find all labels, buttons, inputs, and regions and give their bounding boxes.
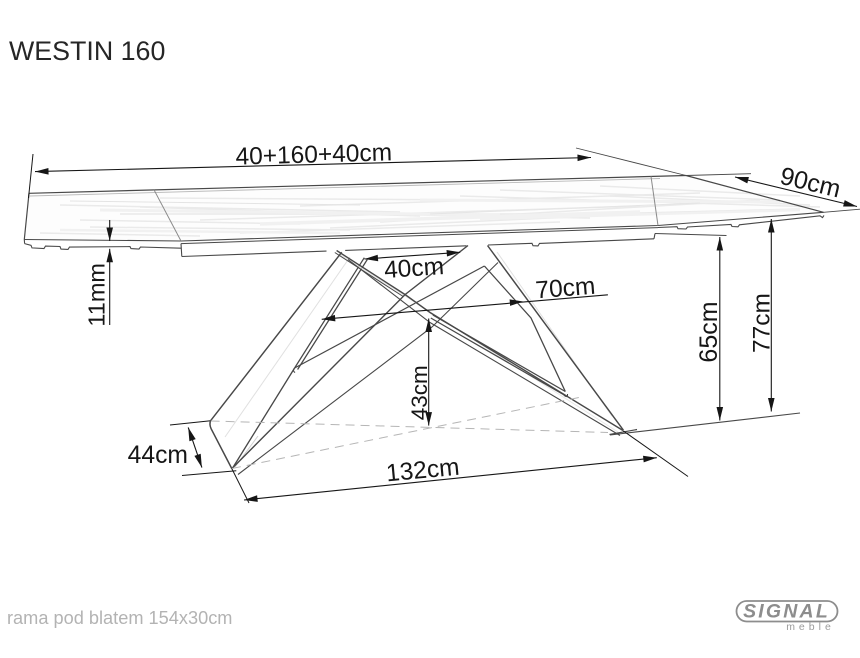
svg-text:meble: meble — [786, 621, 835, 633]
svg-text:40cm: 40cm — [383, 253, 445, 284]
svg-text:77cm: 77cm — [748, 293, 775, 353]
svg-text:11mm: 11mm — [84, 263, 110, 327]
svg-text:65cm: 65cm — [695, 301, 723, 362]
svg-text:SIGNAL: SIGNAL — [743, 601, 830, 623]
svg-text:rama pod blatem 154x30cm: rama pod blatem 154x30cm — [7, 608, 232, 628]
svg-text:40+160+40cm: 40+160+40cm — [235, 139, 392, 170]
svg-text:WESTIN 160: WESTIN 160 — [9, 36, 165, 66]
svg-text:43cm: 43cm — [407, 365, 432, 420]
svg-text:70cm: 70cm — [534, 273, 596, 305]
svg-text:44cm: 44cm — [128, 442, 188, 469]
